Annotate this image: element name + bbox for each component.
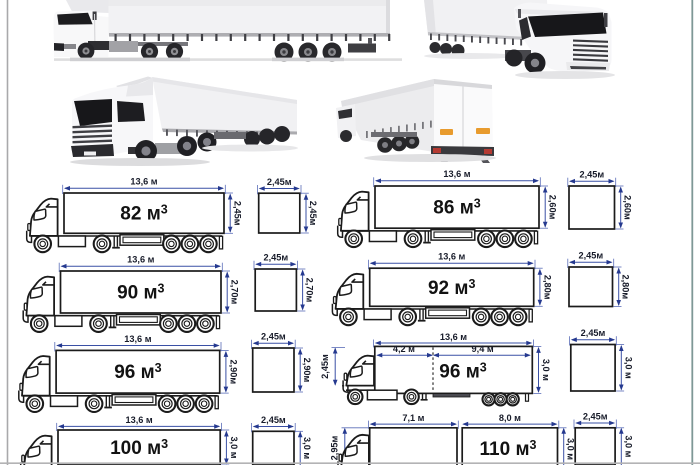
svg-text:2,45м: 2,45м: [578, 251, 603, 261]
svg-text:13,6 м: 13,6 м: [130, 177, 157, 187]
svg-text:2,70м: 2,70м: [230, 280, 240, 305]
svg-text:2,80м: 2,80м: [542, 275, 552, 300]
svg-text:2,45м: 2,45м: [261, 332, 286, 342]
svg-text:13,6 м: 13,6 м: [125, 415, 152, 425]
svg-text:4,2 м: 4,2 м: [393, 344, 415, 354]
svg-text:2,45м: 2,45м: [233, 201, 243, 226]
svg-text:86 м3: 86 м3: [433, 197, 480, 219]
svg-text:3,0 м: 3,0 м: [623, 357, 633, 379]
svg-text:92 м3: 92 м3: [428, 277, 475, 299]
svg-text:2,60м: 2,60м: [623, 195, 633, 220]
svg-text:90 м3: 90 м3: [117, 282, 164, 304]
svg-text:100 м3: 100 м3: [110, 437, 168, 459]
svg-text:7,1 м: 7,1 м: [402, 413, 424, 423]
svg-text:3,0 м: 3,0 м: [623, 435, 633, 457]
svg-text:3,0 м: 3,0 м: [541, 359, 551, 381]
svg-text:2,45м: 2,45м: [263, 253, 288, 263]
svg-text:2,45м: 2,45м: [581, 328, 606, 338]
svg-text:13,6 м: 13,6 м: [443, 169, 470, 179]
svg-text:96 м3: 96 м3: [439, 361, 486, 383]
svg-text:2,80м: 2,80м: [621, 274, 631, 299]
svg-text:9,4 м: 9,4 м: [472, 344, 494, 354]
svg-text:2,45м: 2,45м: [579, 170, 604, 180]
svg-text:110 м3: 110 м3: [480, 438, 537, 460]
svg-text:2,90м: 2,90м: [228, 359, 238, 384]
svg-text:82 м3: 82 м3: [120, 203, 167, 225]
svg-text:13,6 м: 13,6 м: [438, 252, 465, 262]
svg-text:2,45м: 2,45м: [308, 201, 318, 226]
svg-text:2,45м: 2,45м: [320, 354, 330, 379]
svg-text:2,45м: 2,45м: [583, 411, 608, 421]
svg-text:3,0 м: 3,0 м: [565, 438, 575, 460]
svg-text:3,0 м: 3,0 м: [229, 436, 239, 458]
svg-text:13,6 м: 13,6 м: [124, 334, 151, 344]
svg-text:2,60м: 2,60м: [548, 195, 558, 220]
svg-text:8,0 м: 8,0 м: [499, 413, 521, 423]
svg-text:2,95м: 2,95м: [329, 435, 339, 460]
svg-text:2,45м: 2,45м: [261, 415, 286, 425]
svg-text:3,0 м: 3,0 м: [302, 437, 312, 459]
svg-text:2,45м: 2,45м: [267, 177, 292, 187]
svg-text:13,6 м: 13,6 м: [440, 332, 467, 342]
svg-text:2,70м: 2,70м: [305, 278, 315, 303]
svg-text:96 м3: 96 м3: [114, 361, 161, 383]
svg-text:2,90м: 2,90м: [302, 358, 312, 383]
svg-text:13,6 м: 13,6 м: [127, 255, 154, 265]
